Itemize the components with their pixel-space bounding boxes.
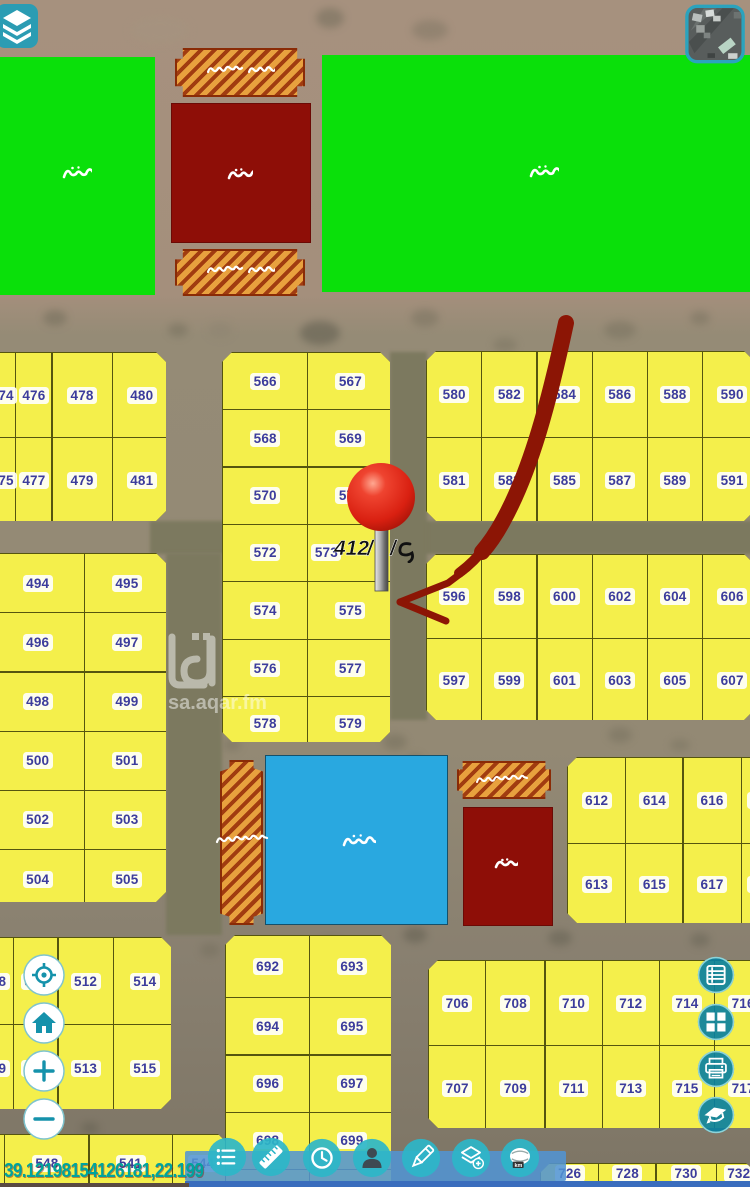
svg-text:km: km bbox=[515, 1163, 523, 1169]
